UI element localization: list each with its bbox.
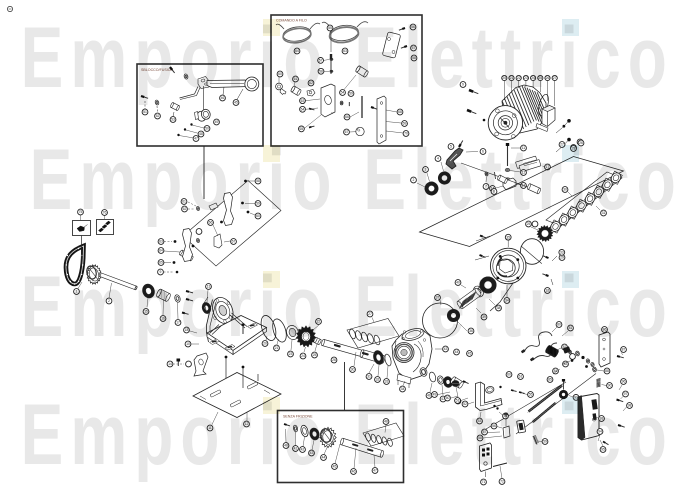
svg-text:60: 60 [507,373,511,377]
svg-text:49: 49 [215,120,219,124]
svg-text:61: 61 [519,375,523,379]
svg-text:35: 35 [506,235,510,239]
svg-text:50: 50 [205,127,209,131]
svg-text:33: 33 [385,380,389,384]
svg-text:67: 67 [232,240,236,244]
svg-text:96: 96 [622,380,626,384]
svg-text:51: 51 [143,110,147,114]
svg-text:66: 66 [345,115,349,119]
svg-text:32: 32 [376,378,380,382]
svg-text:63: 63 [159,240,163,244]
svg-text:69: 69 [403,122,407,126]
svg-text:Emporio Elettrico: Emporio Elettrico [30,132,683,228]
svg-text:65: 65 [300,127,304,131]
svg-text:53: 53 [171,118,175,122]
svg-text:64: 64 [159,249,163,253]
svg-text:30: 30 [351,368,355,372]
svg-text:88: 88 [605,369,609,373]
svg-text:31: 31 [367,375,371,379]
svg-text:26: 26 [332,358,336,362]
svg-text:52: 52 [156,114,160,118]
svg-text:33: 33 [560,251,564,255]
svg-text:68: 68 [398,110,402,114]
svg-text:64: 64 [301,107,305,111]
svg-text:14: 14 [168,362,172,366]
svg-text:85: 85 [548,378,552,382]
